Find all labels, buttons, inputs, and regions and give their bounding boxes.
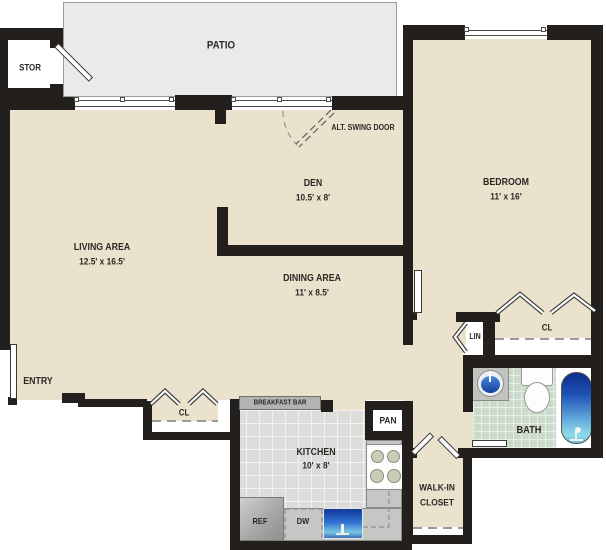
wall	[332, 96, 403, 110]
wall	[591, 25, 603, 458]
entry-door	[10, 344, 17, 399]
wall	[463, 355, 473, 412]
wall	[230, 541, 412, 550]
living-window	[75, 97, 175, 110]
wall	[408, 312, 417, 320]
wall	[413, 25, 465, 40]
wall	[365, 431, 413, 440]
den-dims-label: 10.5' x 8'	[296, 193, 330, 203]
window-frame-line	[465, 30, 547, 31]
wall	[217, 245, 410, 256]
wall	[78, 399, 147, 407]
dishwasher-label: DW	[297, 517, 309, 526]
refrigerator-label: REF	[253, 517, 268, 526]
patio-label: PATIO	[207, 41, 235, 52]
bath-sink-faucet-icon	[489, 371, 491, 382]
window-mullion	[169, 97, 174, 102]
pantry-label: PAN	[379, 416, 396, 426]
wall	[403, 25, 413, 345]
window-mullion	[541, 27, 546, 32]
kitchen-faucet-icon	[336, 533, 349, 535]
bedroom-dims-label: 11' x 16'	[490, 192, 521, 202]
bath-door	[472, 440, 507, 447]
window-mullion	[231, 97, 236, 102]
dining-label: DINING AREA	[283, 274, 341, 284]
walkin-closet-label: WALK-IN	[419, 483, 455, 493]
window-frame-line	[232, 106, 332, 107]
kitchen-dims-label: 10' x 8'	[302, 461, 329, 471]
living-dims-label: 12.5' x 16.5'	[79, 257, 125, 267]
wall	[215, 110, 226, 124]
stove-burner	[370, 469, 384, 483]
den-label: DEN	[304, 179, 323, 189]
window-mullion	[464, 27, 469, 32]
stove-burner	[387, 450, 400, 463]
floor-plan: PATIO STOR ALT. SWING DOOR DEN 10.5' x 8…	[0, 0, 606, 550]
window-mullion	[277, 97, 282, 102]
tub-faucet-icon	[570, 439, 583, 441]
stove-burner	[371, 450, 384, 463]
window-frame-line	[75, 106, 175, 107]
alt-swing-door-label: ALT. SWING DOOR	[331, 124, 394, 132]
storage-label: STOR	[19, 64, 41, 73]
window-mullion	[74, 97, 79, 102]
wall	[230, 399, 240, 550]
bedroom-label: BEDROOM	[483, 178, 529, 188]
bedroom-door	[414, 270, 422, 313]
window-frame-line	[232, 100, 332, 101]
entry-label: ENTRY	[23, 377, 53, 387]
wall	[408, 448, 417, 458]
living-label: LIVING AREA	[74, 243, 130, 253]
wall	[463, 355, 603, 368]
wall	[402, 401, 413, 543]
toilet-bowl	[524, 382, 550, 413]
linen-closet-label: LIN	[469, 333, 480, 341]
wall	[0, 97, 75, 110]
kitchen-label: KITCHEN	[296, 448, 335, 458]
window-mullion	[120, 97, 125, 102]
wall	[483, 322, 495, 356]
window-mullion	[326, 97, 331, 102]
wall	[456, 312, 500, 322]
den-window	[232, 97, 332, 110]
wall	[463, 448, 472, 543]
bedroom-closet-label: CL	[542, 324, 553, 333]
bedroom-window	[465, 27, 547, 39]
walkin-closet-label: CLOSET	[420, 498, 454, 508]
bedroom-closet-interior	[495, 338, 591, 356]
bath-label: BATH	[517, 425, 542, 436]
window-frame-line	[465, 35, 547, 36]
dining-dims-label: 11' x 8.5'	[295, 288, 329, 298]
breakfast-bar-label: BREAKFAST BAR	[254, 400, 307, 407]
living-closet-label: CL	[179, 409, 190, 418]
wall	[402, 535, 472, 544]
wall	[0, 97, 10, 350]
wall	[143, 432, 232, 440]
wall	[458, 448, 467, 458]
stove-burner	[387, 469, 401, 483]
wall	[175, 95, 232, 110]
wall	[321, 400, 333, 412]
wall	[461, 448, 603, 458]
entry-door-opening	[0, 350, 10, 399]
window-frame-line	[75, 100, 175, 101]
wall	[50, 28, 63, 48]
